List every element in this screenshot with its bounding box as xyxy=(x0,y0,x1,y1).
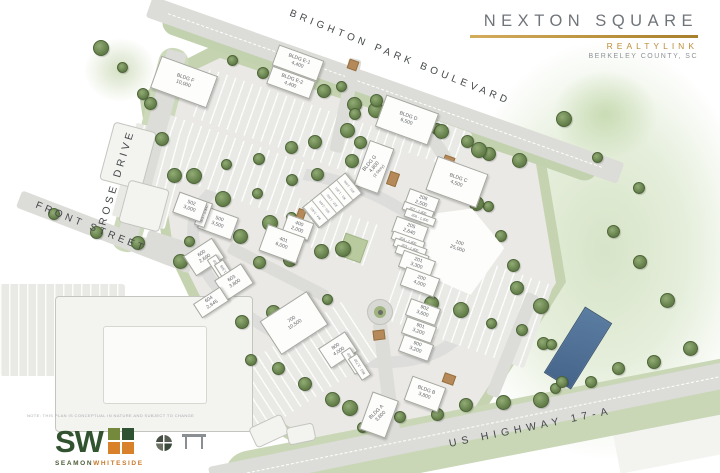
logo-square-icon xyxy=(122,428,134,440)
seamonwhiteside-logo: SW SEAMONWHITESIDE xyxy=(55,426,206,467)
site-plan-canvas: BLDG F10,000BLDG E-14,400BLDG E-24,400BL… xyxy=(0,0,720,473)
logo-wordmark-whiteside: WHITESIDE xyxy=(93,460,144,467)
building-d: BLDG D6,500 xyxy=(375,94,439,145)
roundabout-center xyxy=(378,310,383,315)
developer-name: REALTYLINK xyxy=(470,41,698,51)
logo-square-icon xyxy=(108,442,120,454)
logo-square-icon xyxy=(108,428,120,440)
building-g: BLDG G4,800(2 Story) xyxy=(354,140,395,194)
building-700: 70010,500 xyxy=(260,291,329,355)
title-block: NEXTON SQUARE REALTYLINK BERKELEY COUNTY… xyxy=(470,12,698,60)
logo-wordmark-seamon: SEAMON xyxy=(55,460,93,467)
quadrant-circle-icon xyxy=(156,435,172,451)
project-location: BERKELEY COUNTY, SC xyxy=(470,53,698,60)
roundabout xyxy=(367,299,393,325)
building-row-300: 304 - 2,400303 - 2,400302 - 1,400301 - 1… xyxy=(302,172,363,228)
roundabout-island xyxy=(374,306,386,318)
logo-grid xyxy=(108,428,134,454)
building-a: BLDG A3,600 xyxy=(359,391,399,438)
logo-wordmark: SEAMONWHITESIDE xyxy=(55,460,206,467)
logo-square-icon xyxy=(122,442,134,454)
building-f: BLDG F10,000 xyxy=(150,56,218,108)
project-title: NEXTON SQUARE xyxy=(470,12,698,31)
disclaimer-note: NOTE: THIS PLAN IS CONCEPTUAL IN NATURE … xyxy=(27,413,194,418)
building-b: BLDG B3,800 xyxy=(404,376,447,413)
logo-monogram: SW xyxy=(55,426,103,457)
title-rule xyxy=(470,35,698,38)
pergola-icon xyxy=(182,434,206,452)
